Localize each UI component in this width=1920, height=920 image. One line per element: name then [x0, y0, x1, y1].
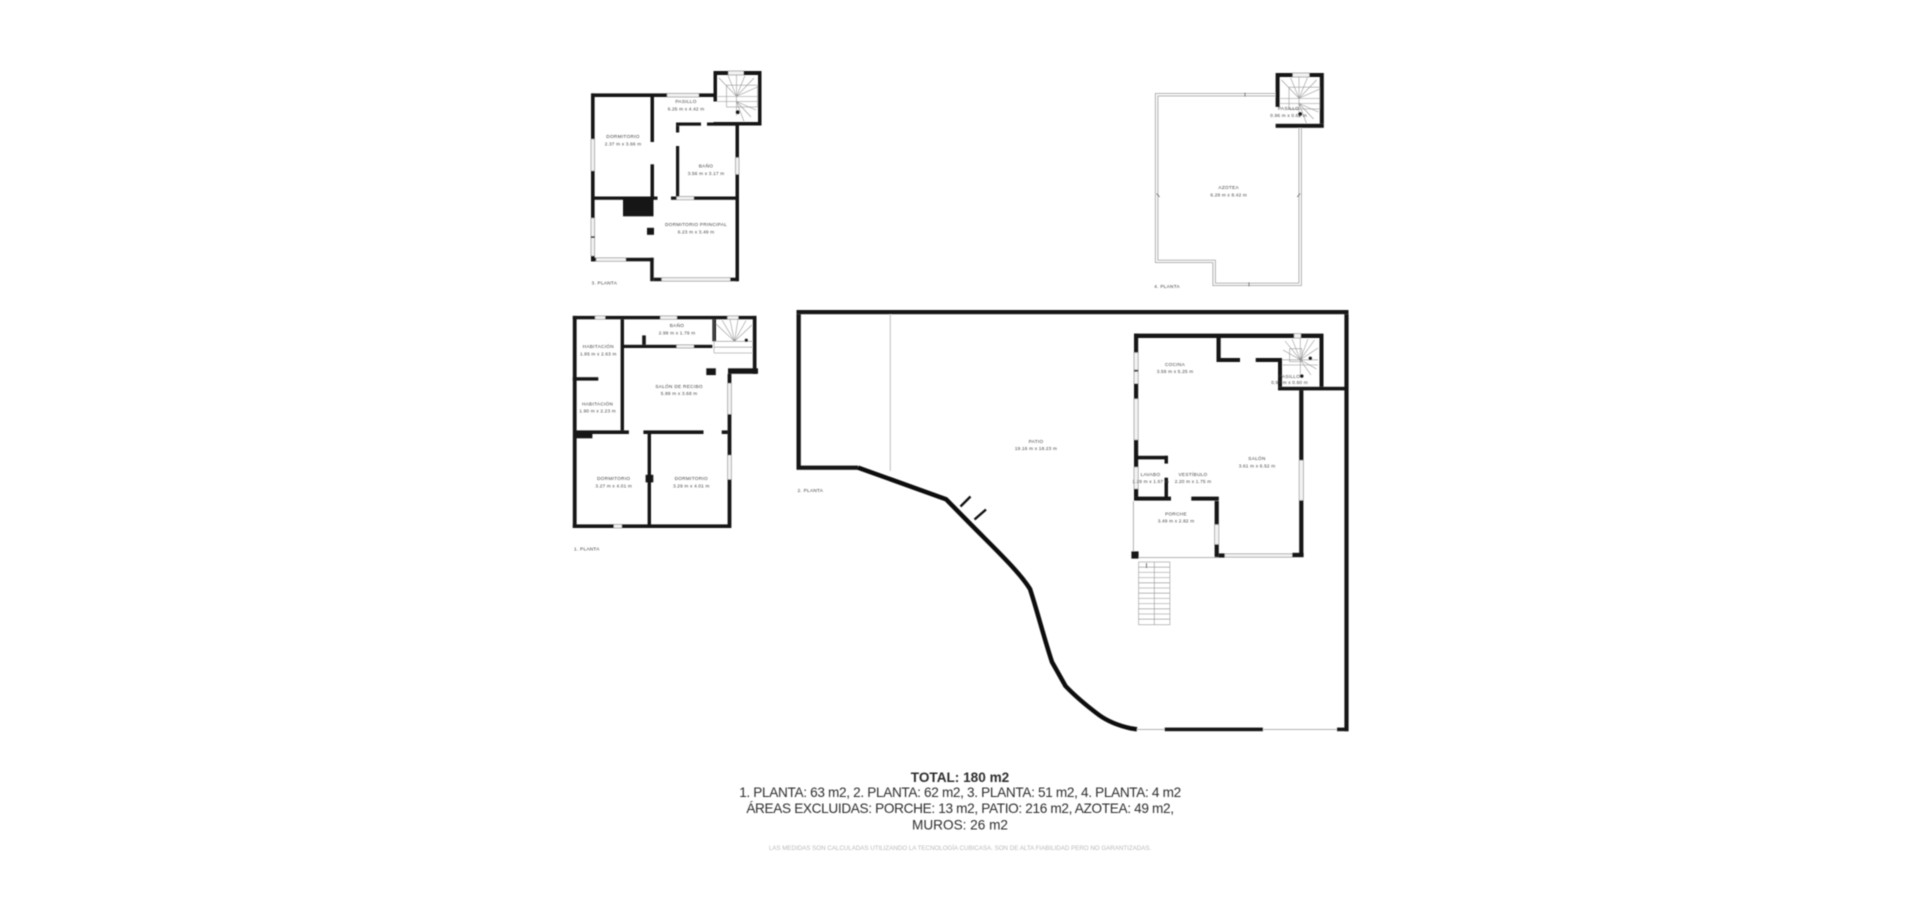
svg-text:PATIO: PATIO [1029, 439, 1044, 444]
svg-text:AZOTEA: AZOTEA [1218, 185, 1239, 190]
svg-text:MUROS: 26 m2: MUROS: 26 m2 [912, 818, 1008, 833]
svg-text:PASILLO: PASILLO [675, 99, 696, 104]
svg-text:5.89 m x 3.68 m: 5.89 m x 3.68 m [661, 391, 698, 396]
svg-text:3. PLANTA: 3. PLANTA [592, 281, 618, 286]
svg-text:1.90 m x 2.23 m: 1.90 m x 2.23 m [579, 409, 616, 414]
svg-text:SALÓN DE RECIBO: SALÓN DE RECIBO [655, 383, 703, 389]
svg-text:0.96 m x 0.62 m: 0.96 m x 0.62 m [1270, 113, 1307, 118]
svg-text:DORMITORIO PRINCIPAL: DORMITORIO PRINCIPAL [665, 222, 727, 227]
svg-text:2.37 m x 3.66 m: 2.37 m x 3.66 m [605, 141, 642, 146]
svg-text:2.98 m x 1.79 m: 2.98 m x 1.79 m [659, 330, 696, 335]
svg-text:2. PLANTA: 2. PLANTA [798, 488, 824, 493]
svg-text:LAS MEDIDAS SON CALCULADAS UTI: LAS MEDIDAS SON CALCULADAS UTILIZANDO LA… [769, 845, 1152, 852]
svg-text:SALÓN: SALÓN [1248, 455, 1265, 461]
svg-text:3.59 m x 5.25 m: 3.59 m x 5.25 m [1157, 369, 1194, 374]
svg-text:1.29 m x 1.67 m: 1.29 m x 1.67 m [1132, 479, 1169, 484]
svg-text:LAVABO: LAVABO [1141, 472, 1161, 477]
svg-text:3.49 m x 2.82 m: 3.49 m x 2.82 m [1158, 518, 1195, 523]
svg-text:3.29 m x 4.01 m: 3.29 m x 4.01 m [673, 483, 710, 488]
svg-text:19.16 m x 18.23 m: 19.16 m x 18.23 m [1015, 446, 1057, 451]
svg-text:6.25 m x 4.42 m: 6.25 m x 4.42 m [668, 106, 705, 111]
svg-text:6.29 m x 8.42 m: 6.29 m x 8.42 m [1210, 193, 1247, 198]
svg-text:BAÑO: BAÑO [670, 322, 685, 328]
svg-text:VESTÍBULO: VESTÍBULO [1178, 471, 1207, 477]
svg-text:TOTAL: 180 m2: TOTAL: 180 m2 [911, 770, 1010, 785]
svg-text:6.23 m x 3.49 m: 6.23 m x 3.49 m [678, 230, 715, 235]
svg-text:PASILLO: PASILLO [1279, 374, 1300, 379]
svg-text:COCINA: COCINA [1165, 362, 1186, 367]
svg-text:DORMITORIO: DORMITORIO [675, 476, 708, 481]
svg-text:HABITACIÓN: HABITACIÓN [582, 401, 613, 407]
svg-text:DORMITORIO: DORMITORIO [597, 476, 630, 481]
svg-text:HABITACIÓN: HABITACIÓN [583, 343, 614, 349]
svg-text:1.85 m x 2.63 m: 1.85 m x 2.63 m [580, 351, 617, 356]
svg-text:ÁREAS EXCLUIDAS: PORCHE: 13 m2: ÁREAS EXCLUIDAS: PORCHE: 13 m2, PATIO: 2… [746, 801, 1173, 816]
svg-text:PORCHE: PORCHE [1165, 511, 1187, 516]
svg-text:4. PLANTA: 4. PLANTA [1154, 284, 1180, 289]
svg-text:2.20 m x 1.75 m: 2.20 m x 1.75 m [1175, 479, 1212, 484]
svg-text:3.61 m x 6.52 m: 3.61 m x 6.52 m [1239, 463, 1276, 468]
svg-text:3.56 m x 3.17 m: 3.56 m x 3.17 m [688, 171, 725, 176]
svg-text:DORMITORIO: DORMITORIO [606, 134, 639, 139]
svg-text:3.27 m x 4.01 m: 3.27 m x 4.01 m [595, 483, 632, 488]
svg-text:BAÑO: BAÑO [699, 163, 714, 169]
svg-text:1. PLANTA: 63 m2, 2. PLANTA: 6: 1. PLANTA: 63 m2, 2. PLANTA: 62 m2, 3. P… [739, 785, 1181, 800]
svg-text:PASILLO: PASILLO [1278, 106, 1299, 111]
svg-text:1. PLANTA: 1. PLANTA [574, 546, 600, 551]
svg-text:0.97 m x 0.60 m: 0.97 m x 0.60 m [1271, 380, 1308, 385]
